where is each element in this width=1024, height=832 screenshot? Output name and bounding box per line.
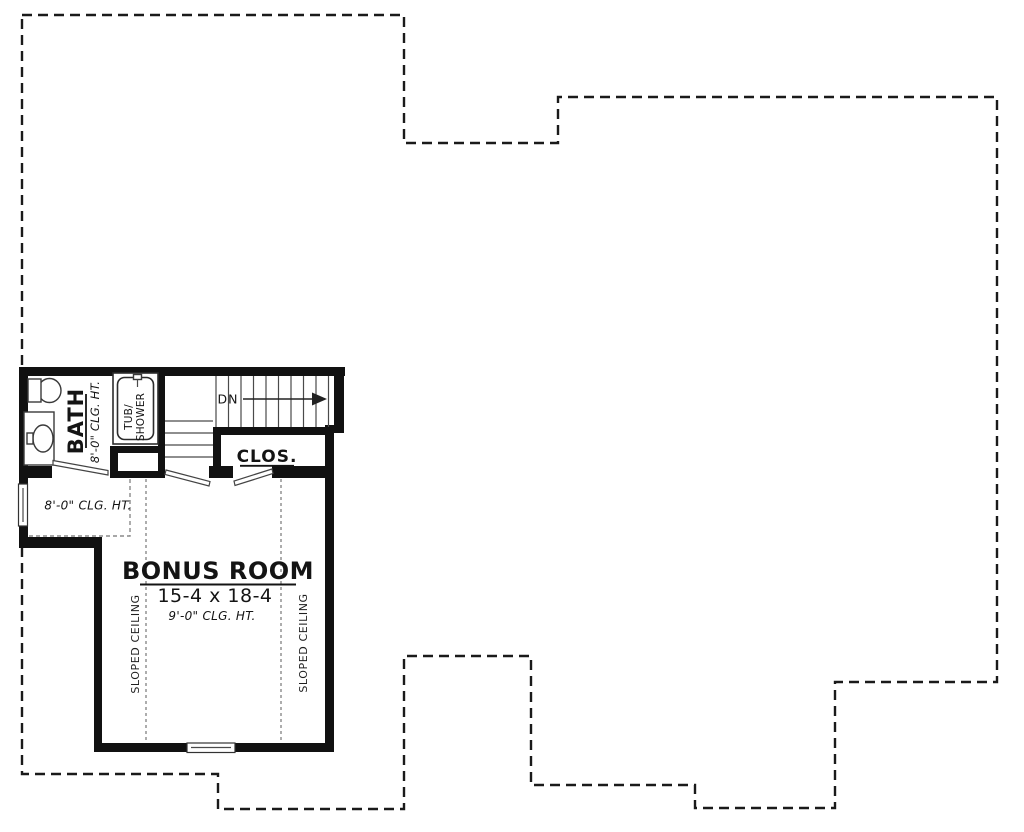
- bath-ceiling-label: 8'-0" CLG. HT.: [88, 381, 102, 463]
- bath-label: BATH: [64, 388, 88, 455]
- wall-niche-top: [110, 446, 162, 453]
- wall-top: [19, 367, 345, 376]
- stair-door: [165, 470, 210, 486]
- bonus-room-label: BONUS ROOM: [122, 557, 314, 585]
- wall-tub-divider: [158, 367, 165, 478]
- sloped-ceiling-label-left: SLOPED CEILING: [129, 594, 142, 693]
- arrowhead-icon: [312, 393, 327, 406]
- toilet: [28, 379, 61, 403]
- stair-landing-treads: [165, 421, 213, 457]
- bonus-room-ceiling-label: 9'-0" CLG. HT.: [168, 609, 255, 623]
- closet-label: CLOS.: [237, 447, 298, 467]
- left-ceiling-label: 8'-0" CLG. HT.: [44, 499, 131, 513]
- floor-plan-canvas: BATH 8'-0" CLG. HT. TUB/ SHOWER DN CLOS.…: [0, 0, 1024, 832]
- wall-closet-door-right: [272, 466, 334, 478]
- floor-plan: BATH 8'-0" CLG. HT. TUB/ SHOWER DN CLOS.…: [0, 0, 1024, 832]
- bonus-room-dimensions: 15-4 x 18-4: [157, 585, 272, 607]
- vanity-sink: [24, 412, 54, 465]
- wall-closet-left: [213, 427, 221, 478]
- sloped-ceiling-label-right: SLOPED CEILING: [297, 593, 310, 692]
- wall-mid-horizontal: [19, 537, 102, 548]
- stair-direction-arrow: [243, 393, 327, 406]
- wall-right-stairs: [334, 367, 344, 433]
- window-bottom: [187, 743, 235, 753]
- wall-bath-door-left: [19, 466, 52, 478]
- stairs-down-label: DN: [218, 392, 239, 407]
- tub-shower-label-line2: SHOWER: [135, 393, 147, 441]
- tub-shower-label-line1: TUB/: [123, 404, 135, 431]
- wall-under-stairs: [213, 427, 334, 435]
- window-left: [19, 484, 28, 526]
- roof-outline: [22, 15, 997, 809]
- wall-niche-bottom: [110, 471, 162, 478]
- closet-door: [234, 469, 273, 486]
- wall-bonus-left: [94, 538, 102, 752]
